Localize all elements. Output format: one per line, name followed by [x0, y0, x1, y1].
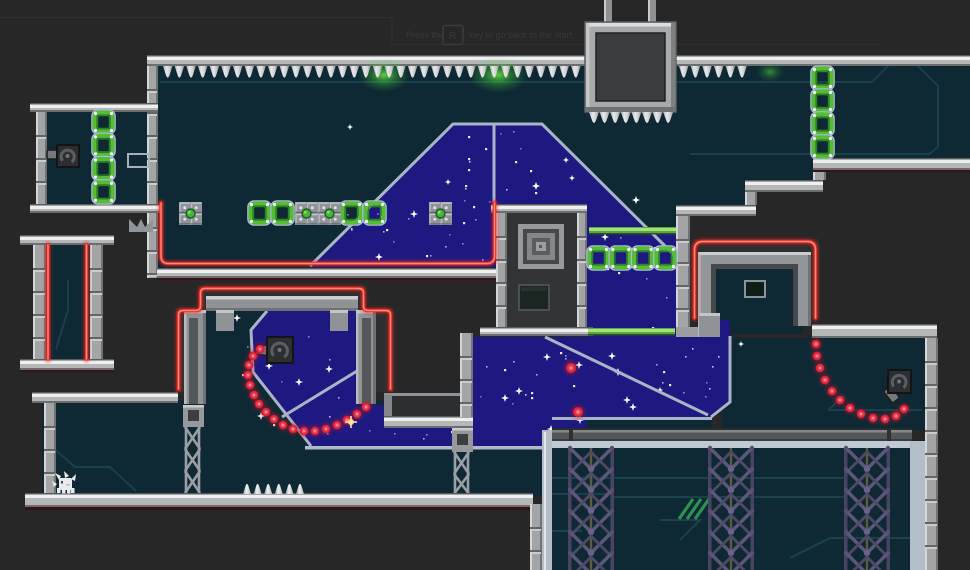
svg-text:R: R — [449, 31, 456, 42]
svg-text:Press the: Press the — [406, 30, 444, 40]
svg-text:key to go back to the start.: key to go back to the start. — [469, 30, 575, 40]
